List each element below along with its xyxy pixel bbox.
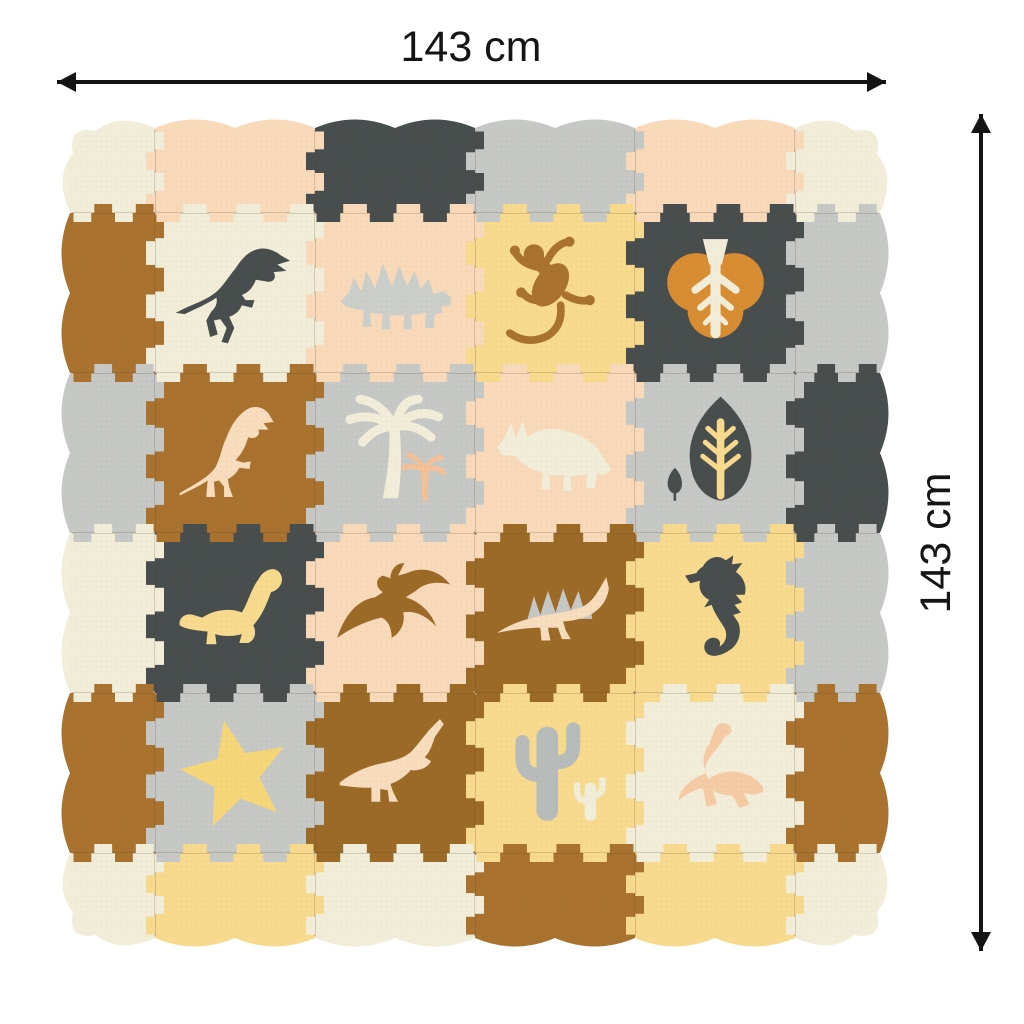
width-dimension-arrow xyxy=(57,72,886,92)
height-dimension-arrow xyxy=(971,114,991,951)
play-mat-illustration xyxy=(0,0,1024,1024)
product-image: 143 cm 143 cm xyxy=(0,0,1024,1024)
